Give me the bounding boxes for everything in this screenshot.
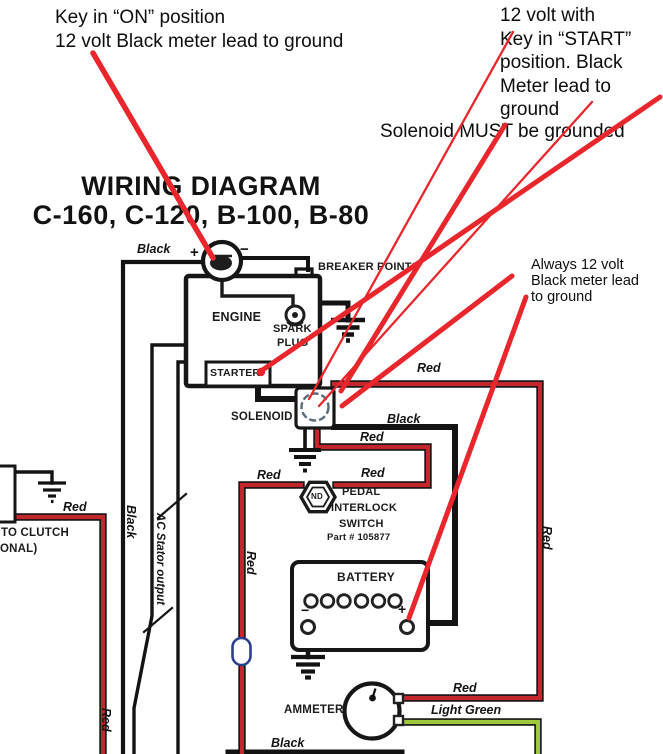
annotation-key-on-line2: 12 volt Black meter lead to ground <box>55 30 343 54</box>
wire-label-black-rail: Black <box>124 505 138 538</box>
label-to-clutch: TO CLUTCH <box>1 527 69 539</box>
annotation-line-to-solenoid-thick <box>341 125 505 391</box>
fuse-symbol <box>233 638 251 665</box>
coil-minus-symbol: − <box>240 241 249 258</box>
solenoid-symbol <box>296 388 334 428</box>
wire-black-starter-to-solenoid <box>258 386 298 399</box>
diagram-title: WIRING DIAGRAM <box>0 171 402 202</box>
wire-label-ac-stator: AC Stator output <box>154 513 166 605</box>
label-breaker-points: BREAKER POINTS <box>318 261 419 273</box>
wire-coil-to-sparkplug <box>222 279 293 306</box>
battery-pos-terminal <box>401 621 414 634</box>
annotation-start-line4: Meter lead to <box>500 75 631 99</box>
label-starter: STARTER <box>210 367 260 379</box>
battery-cells <box>305 595 402 608</box>
red-wires <box>14 384 540 754</box>
wire-label-black-top: Black <box>137 242 170 256</box>
wire-label-black-solenoid: Black <box>387 412 420 426</box>
annotation-solenoid-grounded: Solenoid MUST be grounded <box>380 120 625 144</box>
annotation-start-block: 12 volt with Key in “START” position. Bl… <box>500 4 631 122</box>
wire-label-red-ammeter: Red <box>453 681 477 695</box>
coil-plus-symbol: + <box>190 244 199 261</box>
wire-light-green-casing <box>402 722 538 754</box>
annotation-always-line3: to ground <box>531 290 639 306</box>
annotation-always-block: Always 12 volt Black meter lead to groun… <box>531 258 639 305</box>
label-solenoid: SOLENOID <box>231 411 293 423</box>
ammeter-terminal-bottom <box>394 716 403 725</box>
wire-black-clutch-ground-stub <box>14 472 52 483</box>
ground-solenoid <box>289 428 321 471</box>
annotation-always-line2: Black meter lead <box>531 274 639 290</box>
annotation-line-start-to-solenoid-thin2 <box>319 102 592 406</box>
wire-label-red-rail-right: Red <box>540 526 554 550</box>
wire-label-red-top: Red <box>417 361 441 375</box>
annotation-line-always-to-battery <box>409 297 526 618</box>
battery-neg-terminal <box>302 621 315 634</box>
wire-label-light-green: Light Green <box>431 703 501 717</box>
label-optional-partial: ONAL) <box>0 543 37 555</box>
ammeter-terminal-top <box>394 694 403 703</box>
ground-engine <box>331 320 365 341</box>
label-ammeter: AMMETER <box>284 704 344 716</box>
battery-plus-symbol: + <box>398 601 406 617</box>
wire-ac-stator-b <box>178 362 186 754</box>
wire-black-coil-to-breaker <box>240 258 308 270</box>
breaker-points-symbol <box>203 242 241 280</box>
engine-internal-wires <box>222 279 293 306</box>
ground-clutch <box>38 483 66 502</box>
annotation-always-line1: Always 12 volt <box>531 258 639 274</box>
battery-minus-symbol: − <box>301 602 309 618</box>
wire-black-engine-ground <box>321 303 348 320</box>
breaker-notch <box>296 269 312 276</box>
annotation-start-line1: 12 volt with <box>500 4 631 28</box>
wire-label-black-bottom: Black <box>271 736 304 750</box>
wire-label-red-clutch: Red <box>63 500 87 514</box>
annotation-line-always-to-solenoid <box>342 276 512 406</box>
label-battery: BATTERY <box>337 570 395 584</box>
wire-label-red-mid2: Red <box>361 466 385 480</box>
label-pedal: PEDAL <box>342 486 380 498</box>
annotation-start-line3: position. Black <box>500 51 631 75</box>
wire-label-red-hex-left: Red <box>257 468 281 482</box>
ammeter-symbol <box>345 684 404 739</box>
label-plug: PLUG <box>277 337 308 349</box>
wire-light-green <box>402 722 538 754</box>
label-engine: ENGINE <box>212 310 261 324</box>
label-switch: SWITCH <box>339 518 384 530</box>
diagram-subtitle: C-160, C-120, B-100, B-80 <box>0 200 402 231</box>
ac-crossover-slash-bottom <box>144 608 172 632</box>
label-part-number: Part # 105877 <box>327 532 390 543</box>
wire-label-red-rail-mid: Red <box>244 551 258 575</box>
label-spark: SPARK <box>273 323 312 335</box>
annotation-key-on-line1: Key in “ON” position <box>55 6 225 30</box>
wiring-diagram-page: Key in “ON” position 12 volt Black meter… <box>0 0 663 754</box>
annotation-start-line5: ground <box>500 98 631 122</box>
label-interlock-symbol: ND <box>311 492 323 501</box>
annotation-start-line2: Key in “START” <box>500 28 631 52</box>
ground-battery <box>291 657 325 678</box>
clutch-box <box>0 466 15 522</box>
wire-label-red-rail-left: Red <box>99 708 113 732</box>
label-interlock: INTERLOCK <box>331 502 397 514</box>
wire-label-red-mid1: Red <box>360 430 384 444</box>
